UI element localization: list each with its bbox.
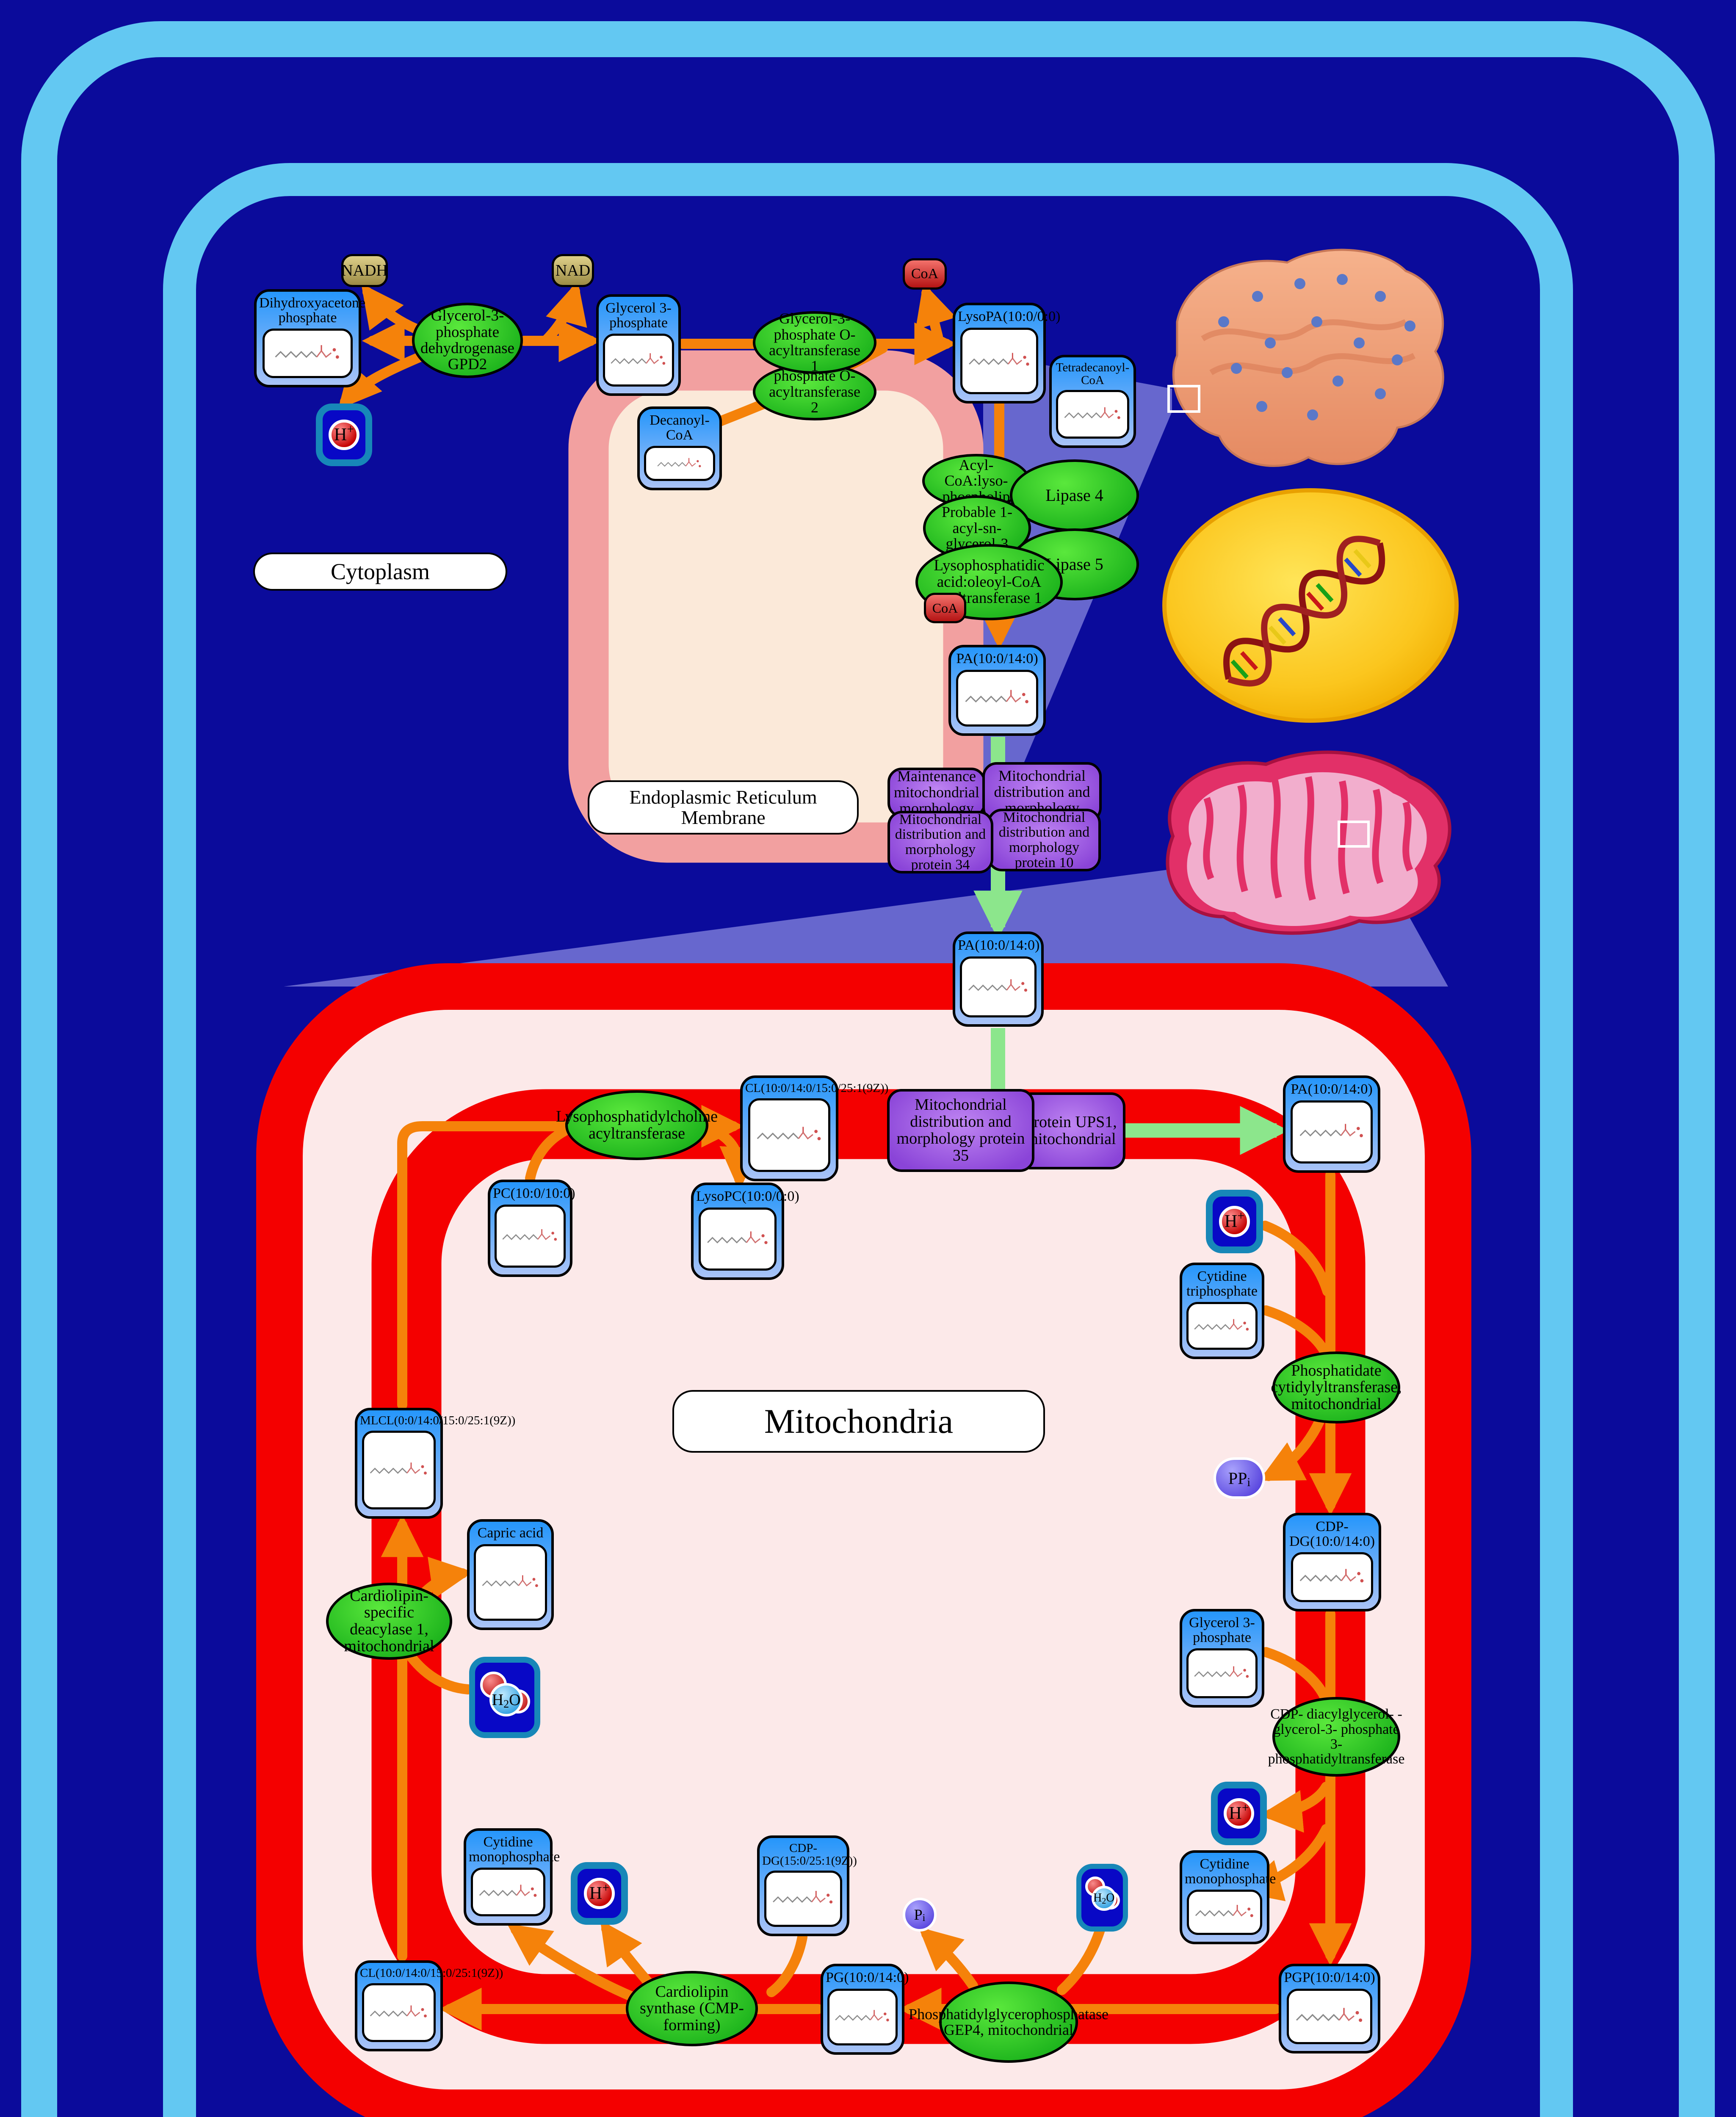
proton-icon: H+: [584, 1878, 615, 1909]
enzyme-cdgpt[interactable]: CDP- diacylglycerol- -glycerol-3- phosph…: [1272, 1697, 1400, 1777]
water-icon: H2O: [479, 1672, 530, 1723]
node-cdpdg-matrix[interactable]: CDP-DG(10:0/14:0): [1283, 1513, 1381, 1611]
node-label: Cytidine monophosphate: [466, 1831, 550, 1865]
enzyme-pcyt[interactable]: Phosphatidate cytidylyltransferase, mito…: [1272, 1351, 1400, 1423]
node-label: CDP-DG(10:0/14:0): [1285, 1515, 1379, 1550]
molecule-structure: [1186, 1648, 1258, 1698]
enzyme-cardiolipin-synthase[interactable]: Cardiolipin synthase (CMP-forming): [626, 1971, 758, 2046]
node-cdpdg-bottom[interactable]: CDP-DG(15:0/25:1(9Z)): [757, 1835, 849, 1936]
molecule-structure: [1291, 1552, 1374, 1602]
enzyme-gpd2[interactable]: Glycerol-3-phosphate dehydrogenase GPD2: [412, 303, 523, 378]
node-g3p-matrix[interactable]: Glycerol 3-phosphate: [1180, 1609, 1264, 1708]
protein-mdm10[interactable]: Mitochondrial distribution and morpholog…: [987, 809, 1101, 871]
node-label: PA(10:0/14:0): [955, 934, 1041, 954]
node-label: CL(10:0/14:0/15:0/25:1(9Z)): [743, 1078, 836, 1096]
molecule-structure: [603, 334, 674, 387]
node-pa-intermembrane[interactable]: PA(10:0/14:0): [953, 931, 1044, 1027]
hplus-node-pgp[interactable]: H+: [1211, 1782, 1267, 1845]
node-label: PA(10:0/14:0): [951, 647, 1043, 667]
node-label: PA(10:0/14:0): [1285, 1078, 1378, 1098]
cytoplasm-label: Cytoplasm: [253, 553, 507, 591]
mitochondria-label: Mitochondria: [672, 1390, 1045, 1453]
node-label: Dihydroxyacetone phosphate: [257, 292, 359, 326]
water-icon: H2O: [1084, 1877, 1120, 1919]
node-label: PGP(10:0/14:0): [1281, 1966, 1378, 1986]
node-label: PC(10:0/10:0): [490, 1182, 570, 1202]
molecule-structure: [263, 329, 352, 378]
hplus-node-top[interactable]: H+: [316, 404, 372, 466]
node-label: Tetradecanoyl-CoA: [1052, 357, 1133, 387]
er-membrane-label: Endoplasmic Reticulum Membrane: [588, 780, 859, 835]
molecule-structure: [1287, 1989, 1372, 2044]
enzyme-label: phosphate O-acyltransferase 2: [766, 368, 863, 415]
node-capric-acid[interactable]: Capric acid: [467, 1519, 554, 1630]
enzyme-label: Phosphatidate cytidylyltransferase, mito…: [1271, 1363, 1402, 1413]
node-decanoyl-coa[interactable]: Decanoyl-CoA: [637, 406, 722, 490]
proton-icon: H+: [329, 420, 359, 450]
molecule-structure: [764, 1871, 842, 1927]
node-label: PG(10:0/14:0): [823, 1966, 902, 1986]
node-label: Decanoyl-CoA: [640, 409, 719, 443]
mitochondrion-illustration-icon: [1167, 752, 1449, 933]
protein-label: Mitochondrial distribution and morpholog…: [894, 812, 987, 873]
nad-node[interactable]: NAD: [552, 254, 594, 287]
molecule-structure: [699, 1208, 777, 1271]
molecule-structure: [362, 1983, 436, 2042]
coa-node-top[interactable]: CoA: [903, 258, 947, 290]
node-cl-bottom[interactable]: CL(10:0/14:0/15:0/25:1(9Z)): [355, 1960, 443, 2051]
node-pc[interactable]: PC(10:0/10:0): [488, 1180, 572, 1277]
molecule-structure: [827, 1989, 898, 2045]
enzyme-gpat1[interactable]: Glycerol-3-phosphate O-acyltransferase 1: [753, 311, 876, 374]
h2o-node-deacylase[interactable]: H2O: [469, 1657, 540, 1738]
molecule-structure: [495, 1205, 566, 1268]
node-dhap[interactable]: Dihydroxyacetone phosphate: [254, 289, 361, 387]
hplus-node-ctp[interactable]: H+: [1206, 1190, 1263, 1253]
pi-node[interactable]: Pi: [903, 1898, 937, 1932]
er-illustration-icon: [1169, 250, 1443, 466]
node-label: LysoPA(10:0/0:0): [955, 305, 1043, 325]
node-label: Cytidine monophosphate: [1182, 1853, 1267, 1887]
enzyme-label: Cardiolipin- specific deacylase 1, mitoc…: [340, 1588, 439, 1655]
molecule-structure: [644, 446, 715, 481]
enzyme-label: Glycerol-3-phosphate O-acyltransferase 1: [766, 311, 863, 374]
enzyme-label: Lipase 4: [1045, 486, 1103, 504]
molecule-structure: [474, 1544, 547, 1621]
node-label: Cytidine triphosphate: [1182, 1265, 1262, 1299]
molecule-structure: [1187, 1890, 1262, 1935]
enzyme-label: Glycerol-3-phosphate dehydrogenase GPD2: [420, 308, 514, 373]
node-mlcl[interactable]: MLCL(0:0/14:0/15:0/25:1(9Z)): [355, 1408, 443, 1519]
node-lysopa[interactable]: LysoPA(10:0/0:0): [953, 303, 1046, 404]
node-label: LysoPC(10:0/0:0): [694, 1185, 782, 1205]
node-label: Capric acid: [470, 1522, 551, 1542]
node-pa-matrix[interactable]: PA(10:0/14:0): [1283, 1075, 1380, 1173]
node-cl-top[interactable]: CL(10:0/14:0/15:0/25:1(9Z)): [740, 1075, 838, 1181]
molecule-structure: [748, 1098, 831, 1172]
node-lysopc[interactable]: LysoPC(10:0/0:0): [691, 1183, 784, 1280]
enzyme-gep4[interactable]: Phosphatidylglycerophosphatase GEP4, mit…: [939, 1982, 1078, 2063]
enzyme-label: Phosphatidylglycerophosphatase GEP4, mit…: [909, 2006, 1108, 2038]
node-pa-er[interactable]: PA(10:0/14:0): [948, 645, 1046, 736]
proton-icon: H+: [1224, 1798, 1254, 1829]
h2o-node-gep4[interactable]: H2O: [1076, 1864, 1128, 1932]
protein-mmm1[interactable]: Maintenance mitochondrial morphology: [887, 768, 986, 818]
molecule-structure: [362, 1431, 436, 1509]
nucleus-illustration-icon: [1164, 490, 1457, 721]
protein-label: Maintenance mitochondrial morphology: [894, 768, 979, 816]
molecule-structure: [956, 670, 1038, 727]
protein-label: Mitochondrial distribution and morpholog…: [994, 810, 1094, 871]
protein-label: Mitochondrial distribution and morpholog…: [894, 1097, 1028, 1164]
node-cmp-bottom[interactable]: Cytidine monophosphate: [464, 1828, 553, 1926]
molecule-structure: [1291, 1100, 1372, 1164]
coa-node-released[interactable]: CoA: [924, 593, 966, 623]
molecule-structure: [960, 328, 1039, 394]
node-label: Glycerol 3-phosphate: [1182, 1611, 1262, 1646]
enzyme-cardiolipin-deacylase[interactable]: Cardiolipin- specific deacylase 1, mitoc…: [326, 1583, 452, 1660]
enzyme-label: CDP- diacylglycerol- -glycerol-3- phosph…: [1268, 1707, 1405, 1766]
pathway-diagram: Cytoplasm Endoplasmic Reticulum Membrane…: [0, 0, 1736, 2117]
ppi-node[interactable]: PPi: [1214, 1457, 1265, 1499]
node-label: MLCL(0:0/14:0/15:0/25:1(9Z)): [357, 1410, 440, 1428]
node-label: CL(10:0/14:0/15:0/25:1(9Z)): [357, 1963, 440, 1981]
nadh-node[interactable]: NADH: [341, 254, 388, 287]
node-cmp-right[interactable]: Cytidine monophosphate: [1180, 1850, 1269, 1944]
node-pgp[interactable]: PGP(10:0/14:0): [1279, 1964, 1380, 2053]
hplus-node-bottom[interactable]: H+: [571, 1862, 628, 1925]
enzyme-label: Cardiolipin synthase (CMP-forming): [639, 1984, 744, 2034]
molecule-structure: [1056, 390, 1129, 439]
node-label: CDP-DG(15:0/25:1(9Z)): [760, 1838, 847, 1868]
protein-mdm34[interactable]: Mitochondrial distribution and morpholog…: [887, 811, 993, 873]
node-g3p-top[interactable]: Glycerol 3-phosphate: [596, 294, 681, 396]
enzyme-label: Lysophosphatidylcholine acyltransferase: [556, 1108, 718, 1142]
enzyme-lpcat[interactable]: Lysophosphatidylcholine acyltransferase: [565, 1090, 708, 1160]
molecule-structure: [1186, 1302, 1258, 1350]
molecule-structure: [471, 1868, 545, 1916]
protein-label: Protein UPS1, mitochondrial: [1023, 1114, 1119, 1148]
node-tetradecanoyl-coa[interactable]: Tetradecanoyl-CoA: [1049, 355, 1136, 448]
node-ctp[interactable]: Cytidine triphosphate: [1180, 1263, 1264, 1359]
node-label: Glycerol 3-phosphate: [599, 297, 678, 331]
protein-mdm35[interactable]: Mitochondrial distribution and morpholog…: [887, 1089, 1034, 1172]
proton-icon: H+: [1219, 1206, 1250, 1237]
molecule-structure: [960, 956, 1037, 1017]
node-pg[interactable]: PG(10:0/14:0): [821, 1964, 904, 2055]
